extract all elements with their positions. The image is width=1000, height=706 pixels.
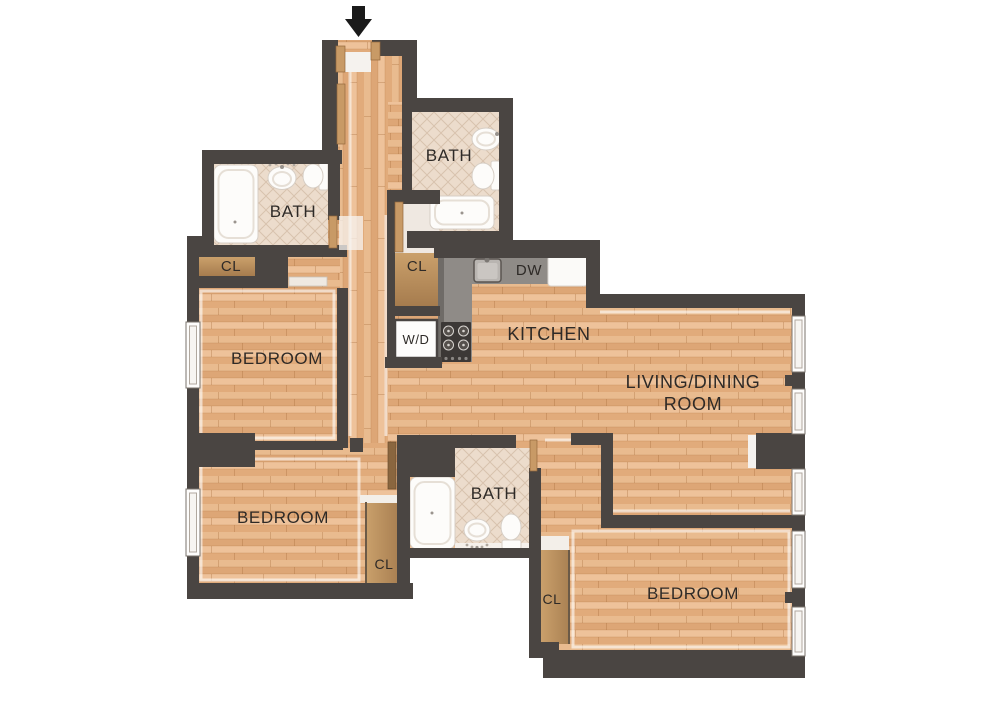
wall	[601, 515, 805, 528]
window	[792, 531, 805, 588]
floor-plan-image: BATH BATH BATH CL CL CL CL BEDROOM BEDRO…	[0, 0, 1000, 706]
wall	[202, 150, 342, 164]
wall	[499, 98, 513, 248]
room-label-living-dining-1: LIVING/DINING	[626, 372, 761, 392]
window	[792, 469, 805, 515]
wall	[434, 240, 600, 258]
floor-plan-page: BATH BATH BATH CL CL CL CL BEDROOM BEDRO…	[0, 0, 1000, 706]
window	[186, 322, 200, 388]
entry-door-leaf	[337, 84, 345, 144]
window	[792, 607, 805, 656]
wall	[450, 435, 516, 448]
room-label-living-dining-2: ROOM	[664, 394, 722, 414]
wall	[202, 150, 214, 248]
column-highlight	[748, 435, 757, 468]
room-label-closet-top-left: CL	[221, 258, 241, 275]
wall	[195, 433, 255, 467]
wall	[350, 438, 363, 452]
wall	[792, 372, 805, 389]
wall	[402, 98, 513, 112]
wall	[387, 306, 440, 316]
wall	[785, 592, 793, 603]
closet-bottom-left-interior	[366, 502, 397, 592]
wall	[397, 477, 410, 599]
wall	[328, 150, 340, 220]
wall	[601, 437, 613, 528]
room-label-closet-hall: CL	[407, 258, 427, 275]
wall	[187, 583, 413, 599]
bathtub	[214, 165, 258, 243]
closet-bottom-right-shelf	[541, 536, 569, 550]
door-swing	[339, 216, 363, 250]
column	[756, 433, 792, 469]
room-label-bath-left: BATH	[270, 202, 316, 221]
window	[792, 389, 805, 434]
window	[186, 489, 200, 556]
hall-door-leaf	[388, 442, 396, 489]
room-label-bedroom-bottom-left: BEDROOM	[237, 508, 329, 527]
room-label-closet-bottom-left: CL	[374, 556, 393, 572]
wall	[322, 40, 338, 152]
wall	[529, 468, 541, 558]
room-label-bedroom-bottom-right: BEDROOM	[647, 584, 739, 603]
stove	[441, 322, 471, 362]
room-label-bedroom-top-left: BEDROOM	[231, 349, 323, 368]
closet-bottom-left-shelf	[360, 495, 403, 503]
room-label-bath-middle: BATH	[471, 484, 517, 503]
room-label-bath-top: BATH	[426, 146, 472, 165]
toilet	[472, 161, 500, 190]
window	[792, 316, 805, 372]
wall	[255, 247, 288, 288]
sink	[472, 128, 500, 150]
bath-left-door-leaf	[329, 216, 337, 248]
bath-middle-door-leaf	[530, 440, 537, 471]
entry-threshold	[345, 52, 371, 72]
bath-top-door-leaf	[395, 202, 403, 252]
bathtub	[410, 477, 455, 549]
label-dishwasher: DW	[516, 262, 542, 279]
wall	[543, 650, 805, 678]
entry-arrow-icon	[345, 6, 372, 37]
wall	[586, 294, 805, 308]
room-label-closet-bottom-right: CL	[542, 591, 561, 607]
label-washer-dryer: W/D	[402, 332, 429, 347]
wall	[187, 276, 261, 288]
wall	[402, 108, 412, 204]
door-jamb	[336, 46, 345, 72]
wall	[397, 435, 455, 477]
kitchen-sink	[474, 258, 501, 283]
wall	[529, 556, 541, 652]
wall	[403, 548, 541, 558]
wall	[387, 190, 395, 368]
room-label-kitchen: KITCHEN	[507, 324, 590, 344]
door-jamb	[371, 42, 380, 60]
wall	[337, 288, 348, 448]
dishwasher-unit	[548, 256, 587, 286]
wall	[385, 357, 442, 368]
toilet	[501, 514, 521, 549]
toilet	[303, 162, 328, 190]
wall	[792, 588, 805, 607]
wall	[785, 375, 793, 386]
bedroom-top-left-door-leaf	[289, 277, 327, 286]
wall	[571, 433, 613, 445]
